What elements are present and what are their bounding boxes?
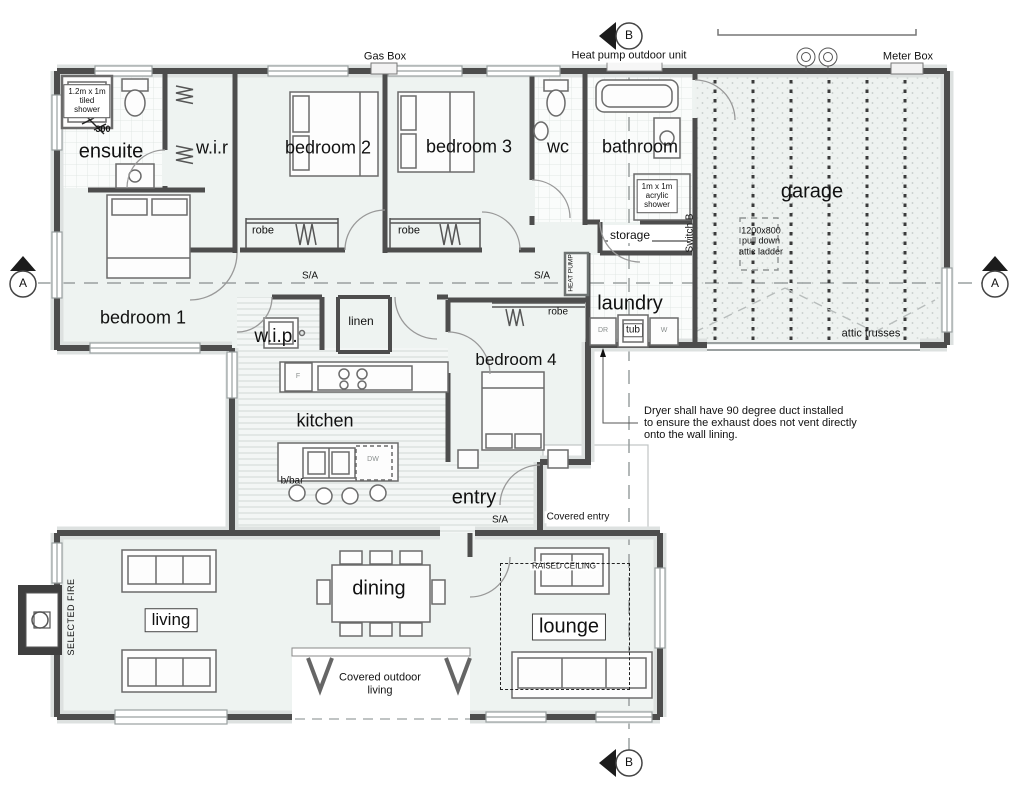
heat-pump-label: HEAT PUMP [567,254,574,291]
room-label-linen: linen [348,315,373,329]
robe-label-bedroom3: robe [398,225,420,238]
acrylic-shower-note: 1m x 1m acrylic shower [637,179,678,213]
tub-label: tub [623,323,643,337]
room-label-living: living [145,608,198,632]
room-label-ensuite: ensuite [79,141,144,164]
room-label-bedroom4: bedroom 4 [475,350,556,370]
smoke-alarm-label-entry: S/A [492,514,508,526]
dimension-bracket [718,29,916,35]
gas-box-symbol [371,63,397,74]
selected-fire-label: SELECTED FIRE [66,578,76,655]
room-label-entry: entry [452,487,496,510]
heat-pump-outdoor-unit-label: Heat pump outdoor unit [570,50,689,63]
washer-label: W [661,327,668,335]
room-label-bedroom2: bedroom 2 [285,138,371,159]
room-label-bedroom1: bedroom 1 [100,308,186,329]
room-label-bedroom3: bedroom 3 [426,137,512,158]
covered-outdoor-living-label: Covered outdoor living [339,671,421,696]
dryer-duct-note: Dryer shall have 90 degree duct installe… [644,405,857,441]
raised-ceiling-outline [500,563,630,690]
dishwasher-label: DW [367,456,379,464]
room-label-wir: w.i.r [196,138,228,159]
garage-floor [695,71,947,345]
robe-label-bedroom2: robe [252,225,274,238]
meter-box-label: Meter Box [883,51,933,64]
tiled-shower-note: 1.2m x 1m tiled shower [63,84,110,118]
robe-label-bedroom4: robe [548,306,568,318]
dim-300-label: 300 [95,124,110,134]
fridge-label: F [296,373,300,381]
attic-trusses-label: attic trusses [842,328,901,341]
room-label-laundry: laundry [597,293,663,316]
smoke-alarm-label-hall2: S/A [534,270,550,282]
floor-plan: A A B B ensuite w.i.r bedroom 2 bedroom … [0,0,1024,786]
gas-box-label: Gas Box [364,51,406,64]
smoke-alarm-label-hall: S/A [302,270,318,282]
room-label-bathroom: bathroom [602,137,678,158]
section-marker-b-bottom: B [625,756,633,770]
covered-entry-label: Covered entry [545,511,612,523]
room-label-garage: garage [781,181,843,204]
fireplace-symbol [18,585,62,655]
meter-box-symbol [891,63,923,74]
switch-b-label: Switch B [684,214,696,253]
room-label-kitchen: kitchen [296,411,353,432]
room-label-dining: dining [352,578,405,601]
porch-beam [292,648,470,656]
room-label-wc: wc [547,137,569,158]
dryer-label: DR [598,327,608,335]
section-marker-a-right: A [991,277,999,291]
attic-ladder-note: 1200x800 pull down attic ladder [739,225,783,256]
room-label-storage: storage [608,229,652,243]
section-marker-b-top: B [625,29,633,43]
breakfast-bar-label: b/bar [281,475,304,487]
room-label-wip: w.i.p. [254,326,297,348]
dryer-note-leader [603,352,638,423]
section-marker-a-left: A [19,277,27,291]
